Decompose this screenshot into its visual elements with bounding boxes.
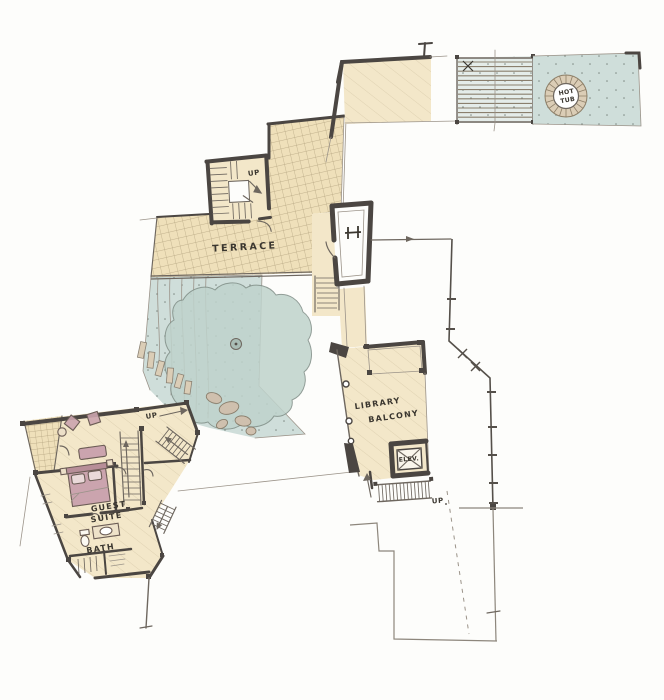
- slat-bridge: [455, 50, 535, 131]
- toilet-tank: [80, 529, 90, 535]
- library-stairs: [373, 477, 434, 502]
- column: [348, 438, 353, 443]
- library-balcony: ELEV. UP LIBRARY BALCONY: [329, 340, 447, 506]
- fireplace-room: [326, 203, 451, 284]
- tower-up-label: UP: [247, 168, 260, 178]
- lower-floor-outline: [350, 491, 523, 641]
- guest-wing: UP GUEST SUITE BATH: [20, 400, 200, 628]
- floor-plan-sketch: TERRACE UP: [0, 0, 664, 700]
- column: [343, 381, 349, 387]
- upper-deck: [326, 43, 457, 162]
- column: [346, 418, 352, 424]
- floor-plan-svg: TERRACE UP: [0, 0, 664, 700]
- tower-void: [229, 180, 250, 202]
- elevator: ELEV.: [391, 441, 428, 476]
- level-line: [178, 472, 352, 491]
- side-table: [58, 428, 66, 436]
- railing-line: [446, 239, 498, 510]
- library-up-label: UP: [431, 496, 444, 505]
- hot-tub: HOT TUB: [545, 75, 587, 117]
- elevator-label: ELEV.: [399, 455, 420, 463]
- hot-tub-terrace: HOT TUB: [533, 53, 641, 126]
- dashed-boundary: [447, 491, 469, 634]
